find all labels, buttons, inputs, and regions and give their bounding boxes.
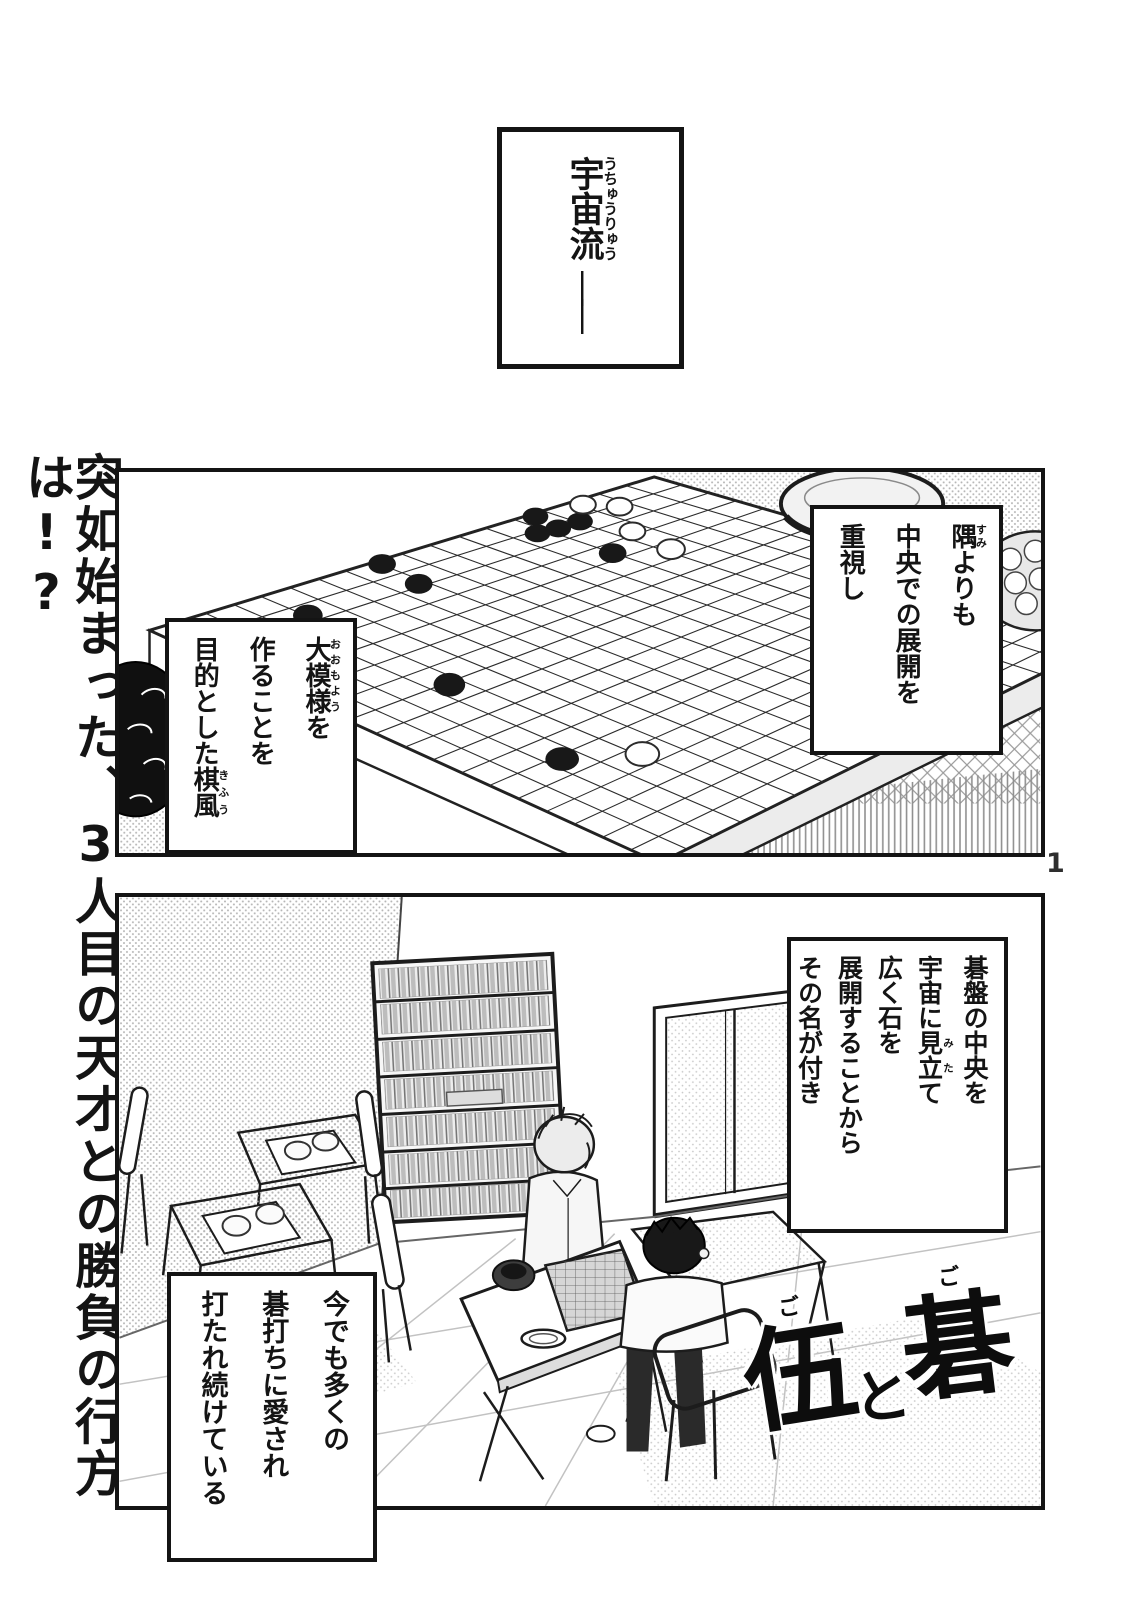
- chapter-caption-box: 宇宙流うちゅうりゅう――: [497, 127, 684, 369]
- book-stack: [447, 1089, 503, 1106]
- caption-line: 碁盤の中央を: [954, 955, 994, 1215]
- caption-line: 展開することから: [829, 955, 869, 1215]
- caption-center-emphasis: 隅すみよりも 中央での展開を 重視し: [810, 505, 1003, 755]
- caption-line: 宇宙に見立みたて: [909, 955, 955, 1215]
- caption-line: 中央での展開を: [877, 523, 933, 737]
- caption-moyo-style: 大模様おおもようを 作ることを 目的とした棋風きふう: [165, 618, 357, 854]
- title-kanji-go5: 伍ご: [732, 1287, 864, 1442]
- caption-line: 今でも多くの: [302, 1290, 363, 1544]
- margin-tagline: 突如始まった、3人目の天才との勝負の行方は!?: [22, 452, 120, 1582]
- series-title-logo: 伍ご と 碁ご: [736, 1276, 1020, 1445]
- caption-line: 作ることを: [231, 636, 287, 836]
- page-number: 1: [1046, 848, 1065, 879]
- caption-line: 隅すみよりも: [933, 523, 989, 737]
- manga-page: 突如始まった、3人目の天才との勝負の行方は!? 宇宙流うちゅうりゅう――: [0, 0, 1127, 1600]
- chapter-title: 宇宙流うちゅうりゅう: [564, 156, 604, 261]
- chapter-caption-text: 宇宙流うちゅうりゅう――: [563, 132, 617, 327]
- title-kanji-go: 碁ご: [892, 1259, 1020, 1411]
- caption-line: 大模様おおもようを: [287, 636, 343, 836]
- caption-line: 碁打ちに愛され: [242, 1290, 303, 1544]
- trailing-dash: ――: [564, 271, 604, 327]
- caption-line: 広く石を: [869, 955, 909, 1215]
- bowl-lid: [522, 1330, 566, 1348]
- caption-legacy: 今でも多くの 碁打ちに愛され 打たれ続けている: [167, 1272, 377, 1562]
- sneaker: [587, 1426, 615, 1442]
- caption-name-origin: 碁盤の中央を 宇宙に見立みたて 広く石を 展開することから その名が付き: [787, 937, 1008, 1233]
- caption-line: 打たれ続けている: [181, 1290, 242, 1544]
- caption-line: 重視し: [821, 523, 877, 737]
- caption-line: その名が付き: [789, 955, 829, 1215]
- caption-line: 目的とした棋風きふう: [175, 636, 231, 836]
